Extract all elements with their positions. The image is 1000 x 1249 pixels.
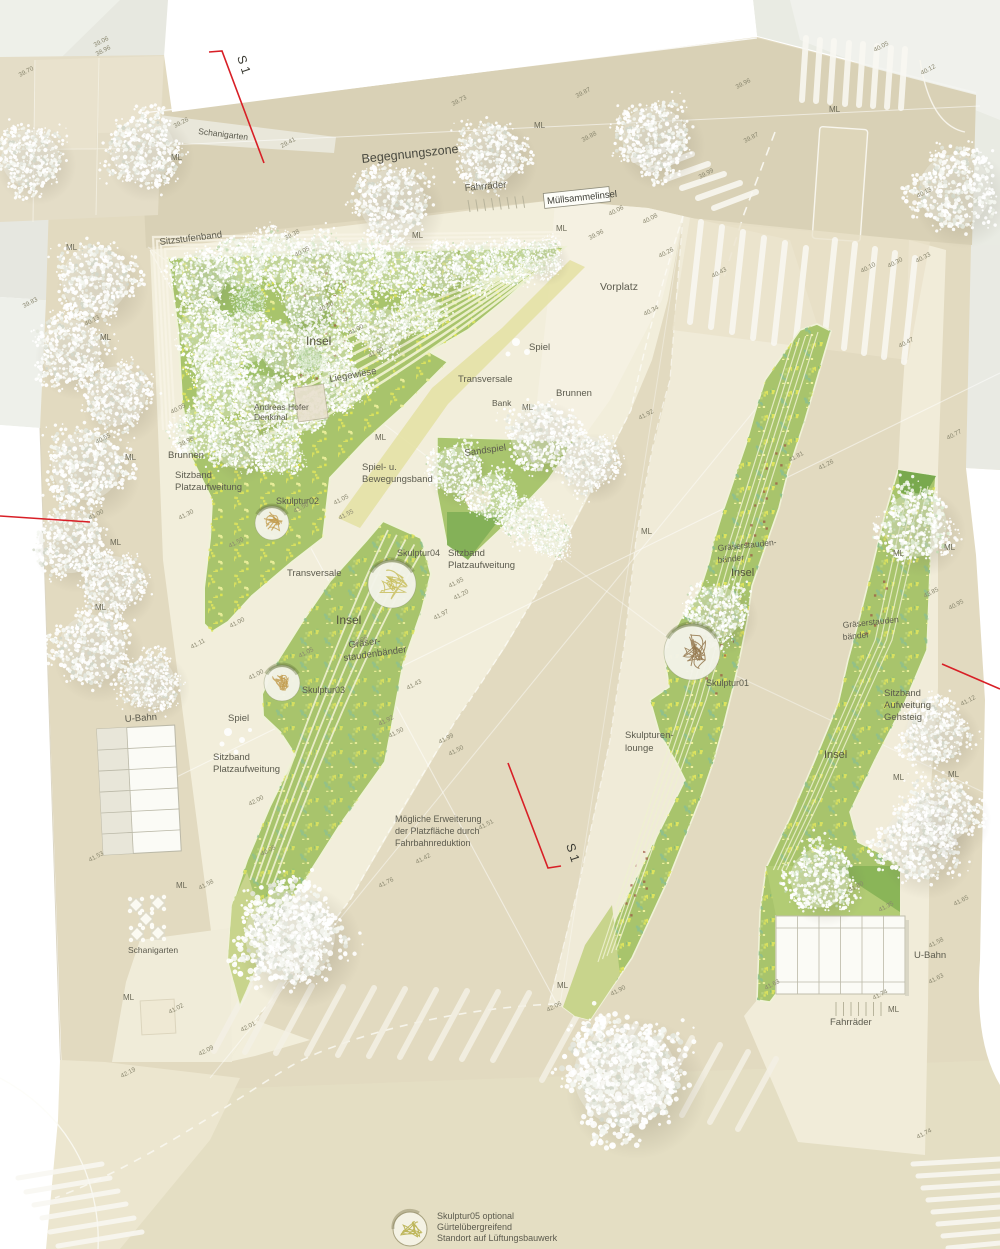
svg-text:Platzaufweitung: Platzaufweitung — [213, 764, 280, 775]
svg-text:ML: ML — [556, 224, 568, 233]
svg-text:ML: ML — [123, 993, 135, 1002]
svg-text:Sitzband: Sitzband — [213, 752, 250, 763]
svg-text:Spiel: Spiel — [228, 713, 249, 724]
svg-text:Insel: Insel — [731, 567, 754, 579]
svg-text:Insel: Insel — [336, 613, 361, 627]
svg-text:ML: ML — [944, 543, 956, 552]
svg-text:Platzaufweitung: Platzaufweitung — [175, 482, 242, 493]
svg-text:Vorplatz: Vorplatz — [600, 281, 638, 293]
svg-text:ML: ML — [557, 981, 569, 990]
svg-text:ML: ML — [95, 603, 107, 612]
svg-text:ML: ML — [171, 153, 183, 162]
svg-text:ML: ML — [893, 773, 905, 782]
svg-text:ML: ML — [534, 121, 546, 130]
svg-text:U-Bahn: U-Bahn — [124, 712, 157, 725]
svg-text:U-Bahn: U-Bahn — [914, 950, 946, 961]
svg-text:ML: ML — [948, 770, 960, 779]
svg-text:lounge: lounge — [625, 743, 654, 754]
svg-text:Bewegungsband: Bewegungsband — [362, 474, 433, 485]
svg-text:ML: ML — [893, 549, 905, 558]
svg-text:Gürtelübergreifend: Gürtelübergreifend — [437, 1222, 512, 1232]
svg-text:ML: ML — [100, 333, 112, 342]
svg-text:Transversale: Transversale — [458, 374, 513, 385]
svg-text:Bank: Bank — [492, 398, 512, 408]
svg-text:Skulptur03: Skulptur03 — [302, 685, 345, 695]
svg-text:Schanigarten: Schanigarten — [128, 945, 178, 955]
svg-text:ML: ML — [412, 231, 424, 240]
svg-text:Brunnen: Brunnen — [168, 450, 204, 461]
svg-text:Mögliche Erweiterung: Mögliche Erweiterung — [395, 814, 482, 824]
svg-text:Insel: Insel — [824, 749, 847, 761]
svg-text:Andreas Hofer: Andreas Hofer — [254, 402, 309, 412]
svg-text:ML: ML — [66, 243, 78, 252]
svg-text:ML: ML — [110, 538, 122, 547]
svg-text:Fahrräder: Fahrräder — [830, 1017, 872, 1028]
svg-text:ML: ML — [829, 105, 841, 114]
svg-text:Aufweitung: Aufweitung — [884, 700, 931, 711]
svg-text:Skulptur01: Skulptur01 — [706, 678, 749, 688]
svg-text:ML: ML — [888, 1005, 900, 1014]
svg-text:Fahrbahnreduktion: Fahrbahnreduktion — [395, 838, 471, 848]
svg-text:ML: ML — [641, 527, 653, 536]
svg-text:Skulpturen-: Skulpturen- — [625, 730, 674, 741]
svg-text:der Platzfläche durch: der Platzfläche durch — [395, 826, 480, 836]
svg-text:Insel: Insel — [306, 334, 331, 348]
svg-text:ML: ML — [176, 881, 188, 890]
svg-text:Gehsteig: Gehsteig — [884, 712, 922, 723]
svg-text:Standort auf Lüftungsbauwerk: Standort auf Lüftungsbauwerk — [437, 1233, 558, 1243]
svg-text:Skulptur04: Skulptur04 — [397, 548, 440, 558]
svg-text:Sitzband: Sitzband — [175, 470, 212, 481]
svg-text:ML: ML — [522, 403, 534, 412]
svg-text:Platzaufweitung: Platzaufweitung — [448, 560, 515, 571]
svg-text:Brunnen: Brunnen — [556, 388, 592, 399]
svg-text:Denkmal: Denkmal — [254, 412, 288, 422]
svg-text:Skulptur02: Skulptur02 — [276, 496, 319, 506]
svg-text:ML: ML — [125, 453, 137, 462]
svg-text:Sitzband: Sitzband — [448, 548, 485, 559]
svg-text:Skulptur05 optional: Skulptur05 optional — [437, 1211, 514, 1221]
svg-text:ML: ML — [375, 433, 387, 442]
svg-text:Spiel: Spiel — [529, 342, 550, 353]
svg-text:Sitzband: Sitzband — [884, 688, 921, 699]
svg-text:Transversale: Transversale — [287, 568, 342, 579]
svg-text:Spiel- u.: Spiel- u. — [362, 462, 397, 473]
